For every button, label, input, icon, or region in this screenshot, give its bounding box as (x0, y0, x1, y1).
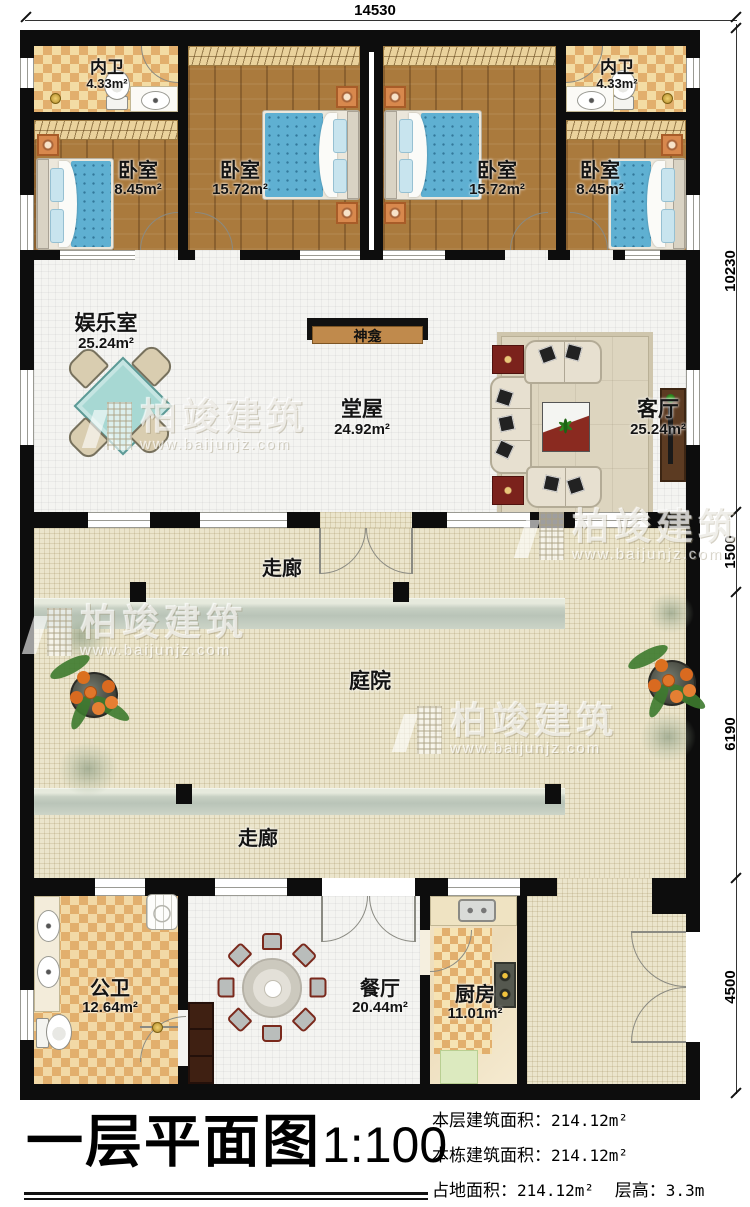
room-label-hall: 堂屋 24.92m² (312, 398, 412, 438)
window (215, 878, 287, 896)
sofa-pillow (498, 415, 516, 433)
room-label-recreation: 娱乐室 25.24m² (58, 312, 154, 352)
door-leaf (631, 931, 686, 933)
scale-label: 1:100 (322, 1120, 447, 1170)
washing-machine-icon (146, 894, 178, 930)
title-underline (24, 1198, 428, 1200)
column-pier (393, 582, 409, 602)
sofa (524, 340, 602, 384)
shrub-icon (640, 712, 696, 762)
window (686, 58, 700, 88)
door-leaf (414, 896, 416, 942)
flower-pot-icon (42, 650, 138, 742)
nightstand (384, 86, 406, 108)
kitchen-mat (440, 1050, 478, 1084)
info-floor-area: 本层建筑面积：214.12m² (432, 1106, 628, 1131)
door-opening (320, 512, 412, 528)
window (575, 512, 648, 528)
floor-drain-icon (50, 93, 61, 104)
wall-interior (34, 878, 95, 896)
shrub-icon (648, 592, 694, 634)
wall-interior (648, 512, 686, 528)
door-leaf (321, 896, 323, 942)
wall-interior (613, 250, 625, 260)
kitchen-sink-icon (458, 899, 496, 922)
window (60, 250, 135, 260)
room-label-courtyard: 庭院 (330, 670, 410, 694)
room-label-bath-top-right: 内卫 4.33m² (582, 58, 652, 91)
wall-interior (360, 250, 383, 260)
floor-drain-icon (662, 93, 673, 104)
wall-interior (412, 512, 447, 528)
column-pier (545, 784, 561, 804)
closet (188, 46, 360, 66)
nightstand (384, 202, 406, 224)
sofa (526, 466, 602, 508)
sink-icon (577, 91, 606, 110)
dimension-right-bottom: 4500 (722, 957, 738, 1017)
window (95, 878, 145, 896)
wall-interior (530, 512, 575, 528)
toilet-icon (46, 1014, 72, 1050)
nightstand (336, 86, 358, 108)
wall-interior (34, 512, 88, 528)
plant-leaf (564, 419, 568, 434)
sink-icon (141, 91, 170, 110)
title-underline (24, 1192, 428, 1195)
dimension-right-top: 10230 (722, 241, 738, 301)
page-title: 一层平面图 (26, 1114, 321, 1171)
room-label-corridor-upper: 走廊 (250, 558, 314, 580)
dimension-right-courtyard: 6190 (722, 704, 738, 764)
wall-interior (287, 878, 322, 896)
wall-corner (652, 878, 686, 914)
shrine-table: 神龛 (312, 326, 423, 344)
closet (383, 46, 556, 66)
room-label-bedroom-left-small: 卧室 8.45m² (98, 160, 178, 199)
room-label-bath-top-left: 内卫 4.33m² (72, 58, 142, 91)
sink-icon (37, 956, 60, 988)
end-table (492, 345, 524, 374)
column-pier (176, 784, 192, 804)
info-building-area: 本栋建筑面积：214.12m² (432, 1141, 628, 1166)
door-opening (420, 930, 430, 975)
door-leaf (631, 1041, 686, 1043)
window (20, 370, 34, 445)
room-label-bedroom-right-small: 卧室 8.45m² (558, 160, 642, 199)
wall-interior (178, 46, 188, 250)
wall-interior (415, 878, 448, 896)
sofa-pillow (543, 475, 561, 493)
wall-interior (520, 878, 557, 896)
window (20, 195, 34, 250)
room-label-kitchen: 厨房 11.01m² (432, 984, 518, 1023)
dimension-top-label: 14530 (330, 2, 420, 19)
wall-interior (34, 112, 178, 120)
nightstand (37, 134, 59, 156)
wall-interior (548, 250, 570, 260)
window (200, 512, 287, 528)
courtyard-path-upper (34, 598, 565, 629)
window (20, 990, 34, 1040)
room-label-bedroom-right-large: 卧室 15.72m² (455, 160, 539, 199)
wall-left (20, 30, 34, 1100)
room-label-corridor-lower: 走廊 (226, 828, 290, 850)
window (448, 878, 520, 896)
window (88, 512, 150, 528)
nightstand (336, 202, 358, 224)
room-label-dining: 餐厅 20.44m² (325, 978, 435, 1017)
wall-interior (178, 250, 195, 260)
sink-icon (37, 910, 60, 942)
window (686, 195, 700, 250)
door-knob-icon (152, 1022, 163, 1033)
wall-interior (556, 46, 566, 250)
dimension-right-corridor: 1500 (722, 522, 738, 582)
floor-entry-hall (527, 896, 686, 1084)
wall-interior (517, 896, 527, 1084)
top-dimension-line (25, 20, 737, 21)
room-label-living: 客厅 25.24m² (626, 398, 690, 438)
wall-interior (287, 512, 320, 528)
end-table (492, 476, 524, 505)
window (383, 250, 445, 260)
nightstand (661, 134, 683, 156)
room-label-bedroom-left-large: 卧室 15.72m² (198, 160, 282, 199)
wall-interior (660, 250, 686, 260)
wall-top (20, 30, 700, 46)
wall-interior (150, 512, 200, 528)
window (625, 250, 660, 260)
floor-plan-canvas: 14530 10230 1500 6190 4500 (0, 0, 750, 1207)
window (300, 250, 360, 260)
info-land-area-and-height: 占地面积：214.12m² 层高：3.3m (432, 1176, 704, 1201)
shrub-icon (58, 742, 118, 796)
window (447, 512, 530, 528)
wall-bottom (20, 1084, 700, 1100)
window (20, 58, 34, 88)
wall-interior (240, 250, 300, 260)
room-label-bath-public: 公卫 12.64m² (62, 978, 158, 1017)
door-leaf (411, 528, 413, 574)
courtyard-path-lower (34, 788, 565, 815)
column-pier (130, 582, 146, 602)
dining-chairs (262, 979, 282, 997)
sideboard (188, 1002, 214, 1084)
wall-interior (34, 250, 60, 260)
wall-interior (445, 250, 505, 260)
wall-cavity (369, 52, 374, 252)
door-leaf (319, 528, 321, 574)
door-opening (686, 932, 700, 1042)
wall-interior (566, 112, 686, 120)
